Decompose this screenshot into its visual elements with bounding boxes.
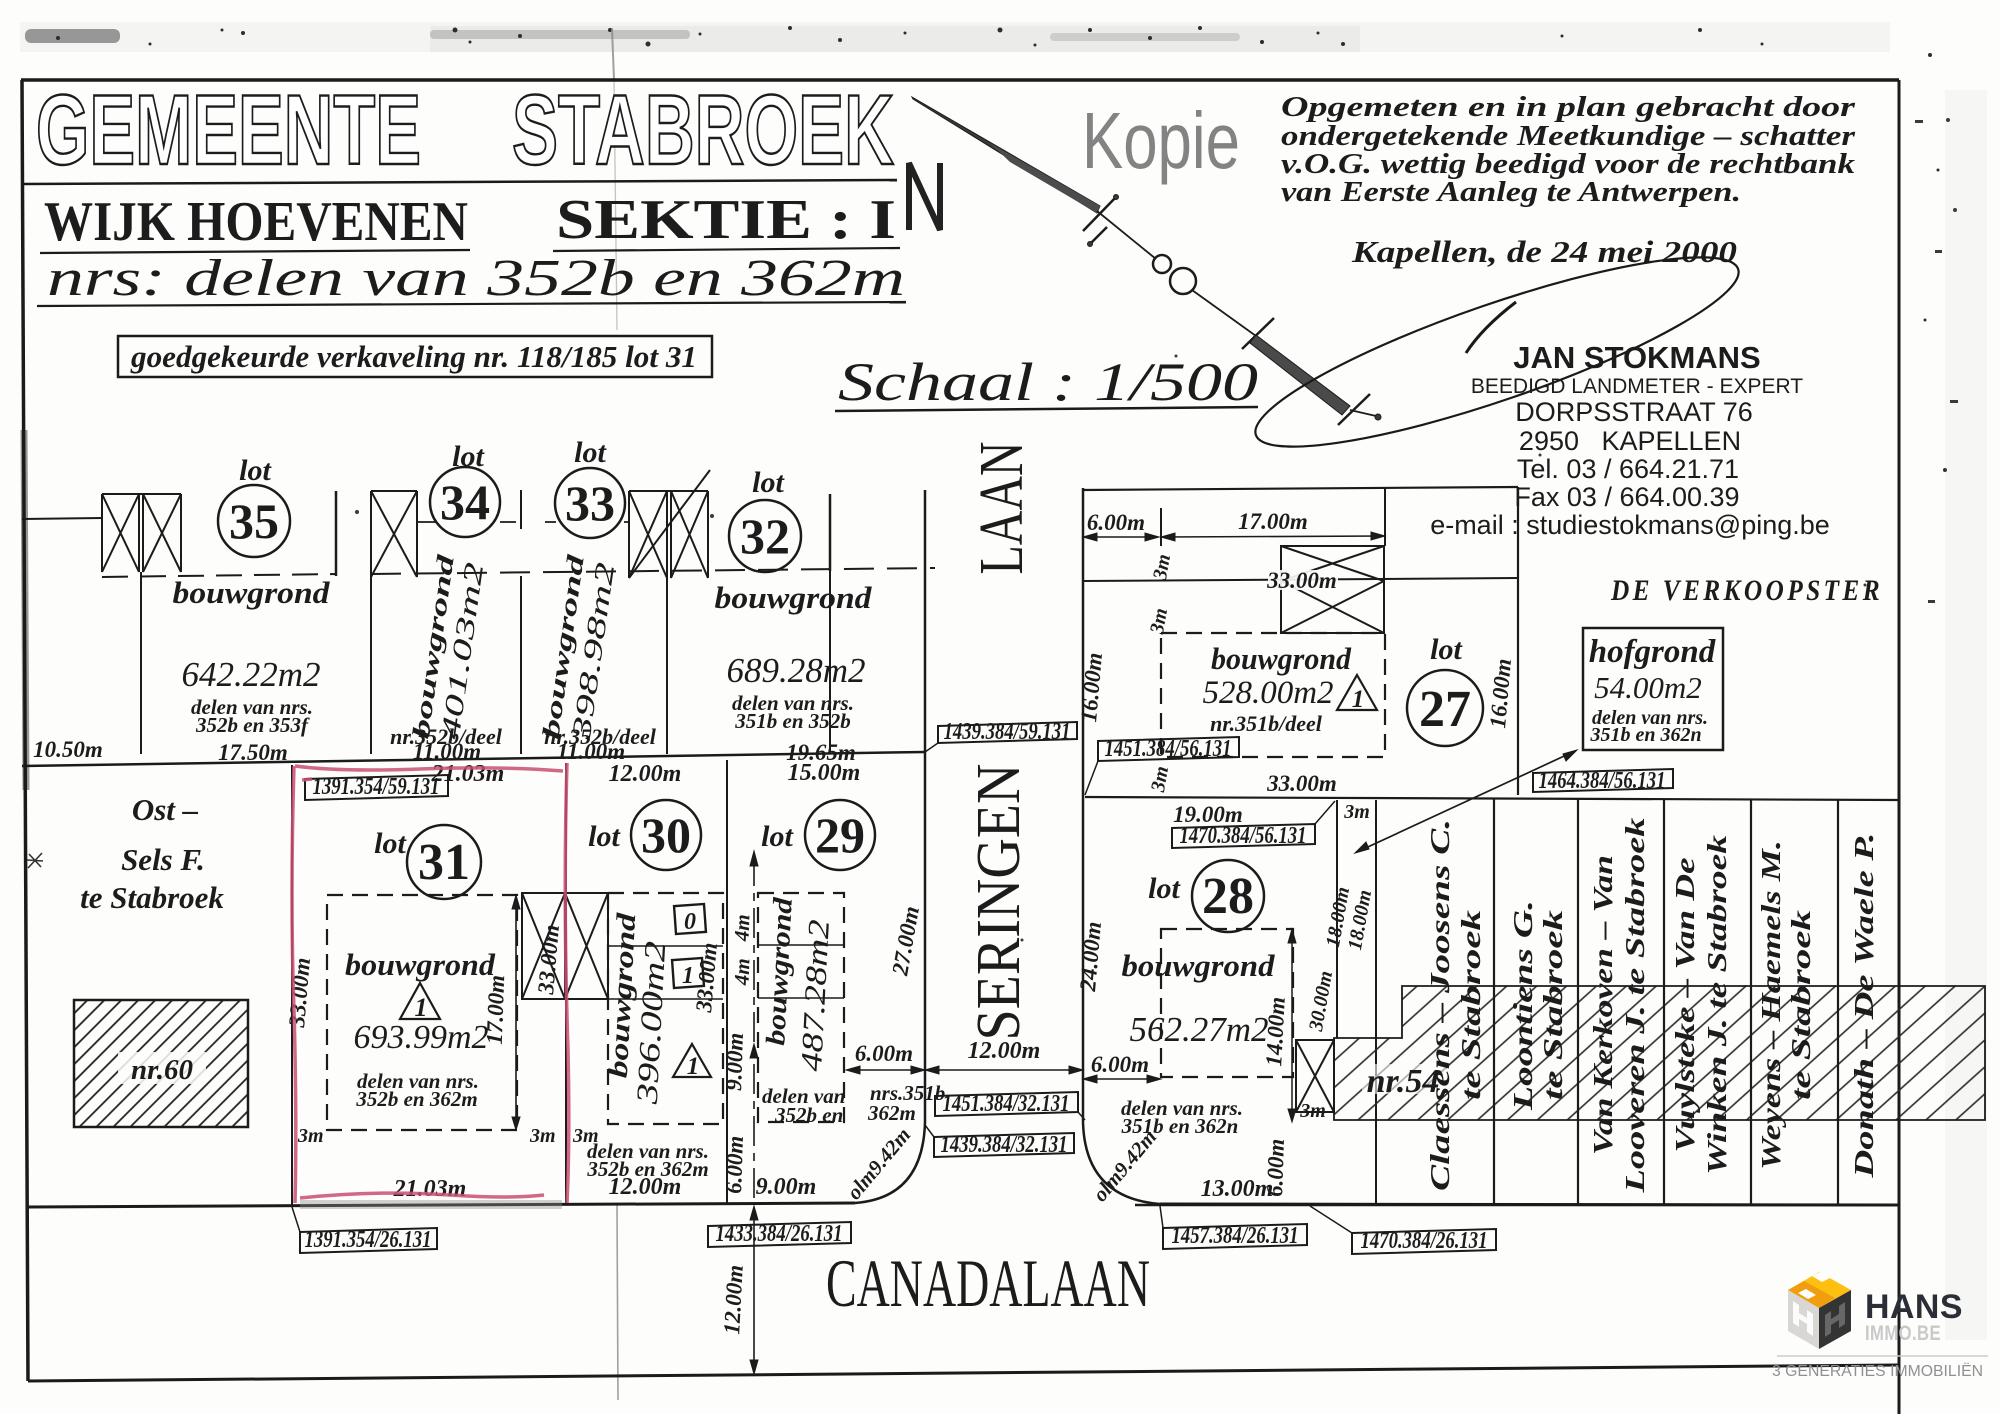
svg-text:Claessens – Joosens C.: Claessens – Joosens C.: [1425, 819, 1455, 1191]
svg-text:10.50m: 10.50m: [33, 737, 103, 762]
svg-text:642.22m2: 642.22m2: [181, 655, 320, 694]
svg-text:lot: lot: [752, 466, 785, 499]
svg-text:1451.384/56.131: 1451.384/56.131: [1105, 736, 1232, 762]
svg-text:17.00m: 17.00m: [482, 975, 509, 1045]
svg-text:e-mail : studiestokmans@ping.b: e-mail : studiestokmans@ping.be: [1430, 510, 1830, 540]
svg-text:lot: lot: [588, 820, 621, 853]
svg-text:1391.354/59.131: 1391.354/59.131: [313, 774, 440, 800]
svg-text:352b en 353f: 352b en 353f: [195, 713, 310, 737]
svg-text:693.99m2: 693.99m2: [353, 1019, 488, 1056]
svg-text:21.03m: 21.03m: [431, 761, 505, 787]
svg-text:1: 1: [687, 1053, 700, 1080]
svg-text:34: 34: [440, 474, 490, 530]
svg-text:0: 0: [684, 909, 696, 935]
svg-text:Van Kerkoven – Van: Van Kerkoven – Van: [1588, 855, 1618, 1155]
svg-text:JAN STOKMANS: JAN STOKMANS: [1513, 340, 1760, 375]
svg-text:4m: 4m: [730, 958, 755, 987]
svg-text:nr.60: nr.60: [131, 1054, 193, 1086]
svg-text:van Eerste Aanleg te Antwe: van Eerste Aanleg te Antwerpen.: [1281, 177, 1741, 208]
svg-text:33: 33: [565, 475, 615, 531]
svg-text:352b en 362m: 352b en 362m: [355, 1087, 477, 1111]
svg-text:nrs: delen van 352b en 362: nrs: delen van 352b en 362m: [47, 250, 905, 307]
svg-text:351b en 362n: 351b en 362n: [1589, 724, 1701, 746]
svg-text:GEMEENTE: GEMEENTE: [36, 74, 421, 185]
svg-text:33.00m: 33.00m: [1266, 568, 1337, 593]
svg-text:HANS: HANS: [1865, 1288, 1963, 1326]
svg-text:1: 1: [682, 963, 694, 989]
svg-text:Kopie: Kopie: [1082, 96, 1240, 185]
svg-text:33.00m: 33.00m: [1266, 771, 1337, 796]
svg-text:28: 28: [1202, 868, 1254, 925]
svg-text:DORPSSTRAAT 76: DORPSSTRAAT 76: [1515, 397, 1753, 427]
svg-text:te Stabroek: te Stabroek: [1786, 909, 1816, 1100]
svg-text:3m: 3m: [1343, 801, 1370, 823]
svg-text:nr.351b/deel: nr.351b/deel: [1210, 711, 1323, 736]
svg-text:1451.384/32.131: 1451.384/32.131: [943, 1091, 1070, 1117]
svg-text:27: 27: [1419, 681, 1471, 738]
svg-text:Schaal : 1/500: Schaal : 1/500: [838, 352, 1258, 412]
svg-text:1457.384/26.131: 1457.384/26.131: [1172, 1223, 1299, 1249]
svg-text:SEKTIE : I: SEKTIE : I: [556, 189, 896, 251]
svg-text:Looveren J. te Stabroek: Looveren J. te Stabroek: [1620, 817, 1650, 1194]
svg-text:1439.384/32.131: 1439.384/32.131: [941, 1132, 1068, 1158]
svg-text:6.00m: 6.00m: [1087, 510, 1145, 535]
svg-text:bouwgrond: bouwgrond: [1122, 948, 1276, 983]
svg-text:1: 1: [1352, 686, 1365, 713]
svg-text:29: 29: [815, 807, 865, 863]
svg-text:21.03m: 21.03m: [393, 1176, 467, 1202]
svg-text:35: 35: [229, 493, 279, 549]
svg-text:1470.384/26.131: 1470.384/26.131: [1361, 1228, 1488, 1254]
svg-text:12.00m: 12.00m: [609, 1174, 682, 1200]
svg-text:lot: lot: [239, 454, 272, 487]
svg-text:3 GENERATIES IMMOBILIËN: 3 GENERATIES IMMOBILIËN: [1772, 1362, 1983, 1380]
svg-text:v.O.G. wettig beedigd voor: v.O.G. wettig beedigd voor de rechtbank: [1281, 149, 1855, 180]
svg-text:ondergetekende Meetkundige: ondergetekende Meetkundige – schatter: [1281, 121, 1856, 152]
svg-text:DE VERKOOPSTER: DE VERKOOPSTER: [1610, 574, 1883, 607]
svg-text:CANADALAAN: CANADALAAN: [826, 1245, 1150, 1321]
svg-text:528.00m2: 528.00m2: [1202, 675, 1333, 711]
svg-text:bouwgrond: bouwgrond: [715, 580, 873, 615]
svg-text:Tel. 03 / 664.21.71: Tel. 03 / 664.21.71: [1517, 454, 1739, 484]
svg-text:bouwgrond: bouwgrond: [173, 575, 331, 610]
svg-text:17.50m: 17.50m: [218, 740, 288, 765]
svg-text:3m: 3m: [529, 1125, 556, 1147]
svg-text:te Stabroek: te Stabroek: [1456, 909, 1486, 1100]
svg-text:562.27m2: 562.27m2: [1129, 1010, 1268, 1049]
svg-text:Ost –: Ost –: [132, 792, 199, 827]
svg-text:Opgemeten en in plan gebra: Opgemeten en in plan gebracht door: [1281, 92, 1856, 123]
svg-text:IMMO.BE: IMMO.BE: [1865, 1322, 1941, 1345]
svg-text:Vuylsteke – Van De: Vuylsteke – Van De: [1670, 857, 1700, 1152]
svg-text:32: 32: [740, 508, 790, 564]
svg-text:31: 31: [418, 834, 470, 891]
svg-text:lot: lot: [574, 436, 607, 469]
svg-text:2950 KAPELLEN: 2950 KAPELLEN: [1519, 426, 1741, 456]
svg-text:1391.354/26.131: 1391.354/26.131: [305, 1227, 432, 1253]
svg-text:te Stabroek: te Stabroek: [1538, 909, 1568, 1100]
svg-text:Fax 03 / 664.00.39: Fax 03 / 664.00.39: [1514, 482, 1739, 512]
svg-text:362m: 362m: [867, 1101, 916, 1125]
svg-text:12.00m: 12.00m: [609, 761, 682, 787]
svg-text:lot: lot: [1148, 872, 1181, 905]
svg-text:689.28m2: 689.28m2: [726, 651, 865, 690]
svg-text:12.00m: 12.00m: [968, 1038, 1041, 1064]
svg-text:351b en 362n: 351b en 362n: [1121, 1114, 1239, 1138]
svg-text:Loontiens G.: Loontiens G.: [1508, 900, 1538, 1111]
svg-text:WIJK HOEVENEN: WIJK HOEVENEN: [44, 191, 468, 253]
svg-text:1439.384/59.131: 1439.384/59.131: [944, 719, 1071, 745]
svg-text:15.00m: 15.00m: [788, 760, 861, 786]
svg-text:Winken J. te Stabroek: Winken J. te Stabroek: [1702, 834, 1732, 1175]
svg-text:12.00m: 12.00m: [719, 1264, 748, 1335]
svg-text:17.00m: 17.00m: [1238, 509, 1308, 534]
svg-text:1464.384/56.131: 1464.384/56.131: [1539, 768, 1666, 794]
svg-text:6.00m: 6.00m: [1091, 1052, 1149, 1077]
svg-text:1: 1: [415, 993, 428, 1022]
svg-text:bouwgrond: bouwgrond: [1211, 641, 1351, 676]
svg-text:6.00m: 6.00m: [1262, 1138, 1289, 1197]
svg-text:1433.384/26.131: 1433.384/26.131: [716, 1221, 843, 1247]
svg-text:BEEDIGD LANDMETER - EXPERT: BEEDIGD LANDMETER - EXPERT: [1471, 375, 1803, 398]
svg-text:Donath – De Waele P.: Donath – De Waele P.: [1849, 833, 1879, 1179]
svg-text:3m: 3m: [297, 1125, 324, 1147]
svg-text:6.00m: 6.00m: [855, 1041, 913, 1066]
svg-text:14.00m: 14.00m: [1261, 996, 1290, 1067]
svg-text:352b en: 352b en: [774, 1103, 843, 1127]
svg-text:1470.384/56.131: 1470.384/56.131: [1180, 823, 1307, 849]
svg-text:Kapellen, de 24 mei 2000: Kapellen, de 24 mei 2000: [1351, 234, 1737, 269]
svg-text:goedgekeurde verkaveling nr.: goedgekeurde verkaveling nr. 118/185 lot…: [130, 339, 697, 374]
svg-text:4m: 4m: [730, 914, 755, 943]
svg-text:lot: lot: [1430, 633, 1463, 666]
svg-text:Sels F.: Sels F.: [121, 842, 205, 877]
svg-text:54.00m2: 54.00m2: [1594, 670, 1702, 705]
svg-text:te Stabroek: te Stabroek: [80, 880, 224, 915]
svg-text:3m: 3m: [1149, 552, 1175, 582]
svg-text:6.00m: 6.00m: [721, 1135, 748, 1194]
svg-text:30: 30: [641, 807, 691, 863]
svg-text:Weyens – Haemels M.: Weyens – Haemels M.: [1756, 840, 1786, 1170]
svg-text:351b en 352b: 351b en 352b: [734, 709, 851, 733]
svg-text:3m: 3m: [1299, 1100, 1326, 1122]
svg-text:hofgrond: hofgrond: [1589, 634, 1716, 670]
svg-text:LAAN: LAAN: [968, 442, 1036, 575]
svg-text:3m: 3m: [1147, 764, 1173, 794]
svg-text:SERINGEN: SERINGEN: [965, 764, 1033, 1041]
svg-text:9.00m: 9.00m: [756, 1174, 817, 1200]
svg-text:bouwgrond: bouwgrond: [345, 947, 496, 982]
svg-text:lot: lot: [374, 827, 407, 860]
svg-text:lot: lot: [761, 820, 794, 853]
svg-text:9.00m: 9.00m: [721, 1032, 748, 1091]
svg-text:STABROEK: STABROEK: [512, 74, 894, 185]
